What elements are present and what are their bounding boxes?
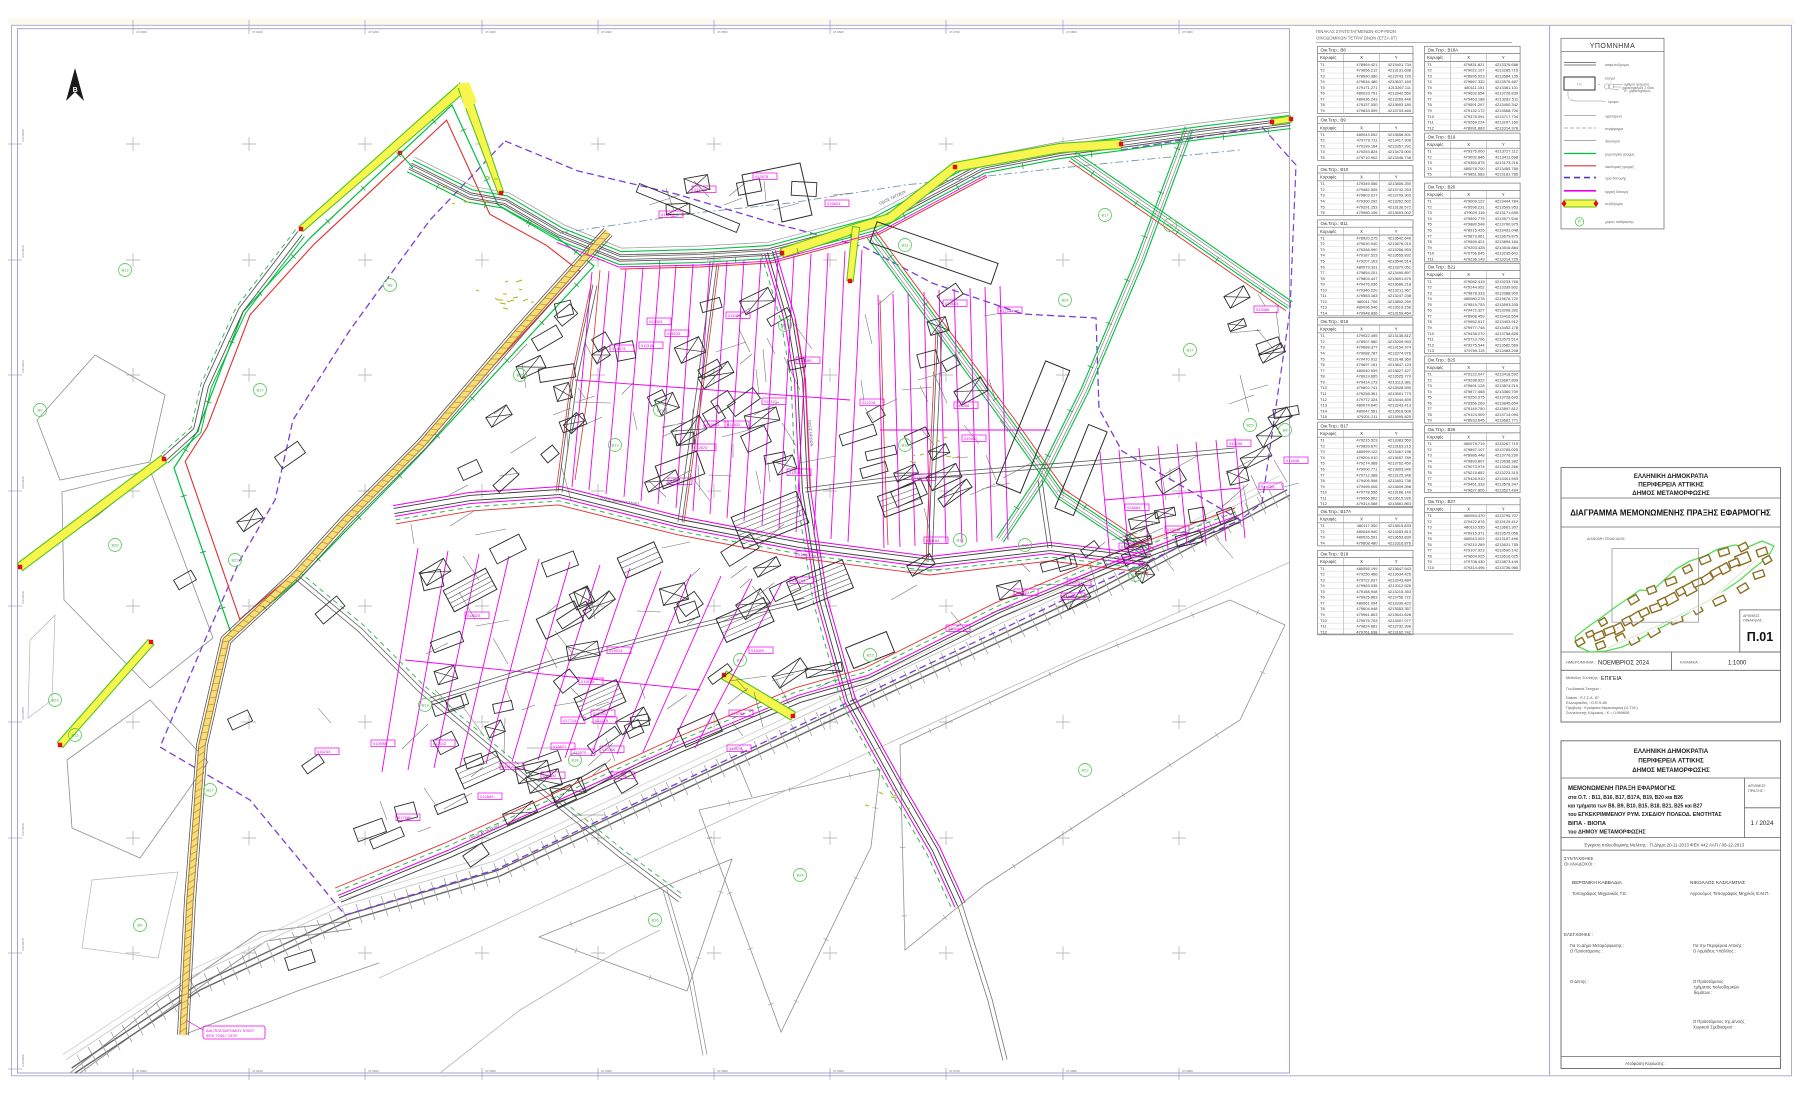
svg-text:479428.910: 479428.910 bbox=[1463, 476, 1485, 481]
svg-text:Οικ.Τετρ.: Β27: Οικ.Τετρ.: Β27 bbox=[1428, 499, 1456, 504]
svg-text:4213894.184: 4213894.184 bbox=[1495, 239, 1519, 244]
svg-text:Τ3: Τ3 bbox=[1320, 143, 1325, 148]
svg-text:479963.035: 479963.035 bbox=[1356, 583, 1378, 588]
svg-text:479268.990: 479268.990 bbox=[1356, 247, 1378, 252]
svg-text:Π1: Π1 bbox=[1577, 82, 1583, 87]
svg-text:015644: 015644 bbox=[945, 301, 959, 306]
svg-text:Τ7: Τ7 bbox=[1320, 472, 1325, 477]
svg-text:47.9000: 47.9000 bbox=[136, 1069, 147, 1073]
svg-text:479877.468: 479877.468 bbox=[1463, 389, 1485, 394]
svg-text:Τ11: Τ11 bbox=[1427, 120, 1434, 125]
svg-text:Τ5: Τ5 bbox=[1320, 259, 1325, 264]
svg-text:4213314.378: 4213314.378 bbox=[1495, 125, 1519, 130]
svg-text:Τ4: Τ4 bbox=[1427, 389, 1432, 394]
svg-text:479149.750: 479149.750 bbox=[1463, 406, 1485, 411]
svg-text:4213758.828: 4213758.828 bbox=[1495, 331, 1519, 336]
svg-text:480043.052: 480043.052 bbox=[1356, 132, 1378, 137]
svg-text:479204.010: 479204.010 bbox=[1356, 455, 1378, 460]
svg-text:4213575.514: 4213575.514 bbox=[1495, 337, 1519, 342]
svg-text:Τ7: Τ7 bbox=[1427, 314, 1432, 319]
svg-text:4213187.496: 4213187.496 bbox=[1495, 536, 1519, 541]
svg-text:4213113.381: 4213113.381 bbox=[1388, 379, 1412, 384]
svg-text:4213452.178: 4213452.178 bbox=[1495, 325, 1519, 330]
svg-text:Κορυφές: Κορυφές bbox=[1320, 327, 1336, 332]
svg-text:479634.480: 479634.480 bbox=[1356, 79, 1378, 84]
svg-text:4.213600: 4.213600 bbox=[21, 129, 25, 142]
svg-text:4213657.789: 4213657.789 bbox=[1388, 455, 1412, 460]
svg-text:019386: 019386 bbox=[798, 358, 812, 363]
svg-text:479583.183: 479583.183 bbox=[1356, 293, 1378, 298]
svg-text:4213892.259: 4213892.259 bbox=[1388, 299, 1412, 304]
svg-text:479591.297: 479591.297 bbox=[1463, 102, 1485, 107]
svg-text:479158.948: 479158.948 bbox=[1356, 589, 1378, 594]
svg-text:Τ8: Τ8 bbox=[1427, 553, 1432, 558]
svg-text:479713.796: 479713.796 bbox=[1463, 337, 1485, 342]
svg-text:480117.300: 480117.300 bbox=[1357, 523, 1379, 528]
svg-text:ΥΠΟΜΝΗΜΑ: ΥΠΟΜΝΗΜΑ bbox=[1590, 43, 1636, 50]
svg-text:του ΕΓΚΕΚΡΙΜΜΕΝΟΥ ΡΥΜ. ΣΧΕΔΙΟΥ: του ΕΓΚΕΚΡΙΜΜΕΝΟΥ ΡΥΜ. ΣΧΕΔΙΟΥ ΠΟΛΕΟΔ. Ε… bbox=[1568, 812, 1722, 818]
svg-text:Τ10: Τ10 bbox=[1320, 287, 1328, 292]
svg-text:4213703.465: 4213703.465 bbox=[1388, 108, 1412, 113]
svg-text:4213709.303: 4213709.303 bbox=[1388, 193, 1412, 198]
svg-text:480043.002: 480043.002 bbox=[1463, 536, 1485, 541]
svg-text:47.9000: 47.9000 bbox=[136, 30, 147, 34]
svg-text:479851.683: 479851.683 bbox=[1463, 172, 1485, 177]
svg-text:4213653.830: 4213653.830 bbox=[1388, 535, 1412, 540]
svg-text:4213765.025: 4213765.025 bbox=[1495, 447, 1519, 452]
svg-text:Τ11: Τ11 bbox=[1320, 391, 1327, 396]
svg-text:479275.544: 479275.544 bbox=[1463, 342, 1485, 347]
svg-text:Τ11: Τ11 bbox=[1427, 337, 1434, 342]
svg-text:479350.875: 479350.875 bbox=[1463, 160, 1485, 165]
svg-text:Τοπογράφος Μηχανικός Τ.Ε.: Τοπογράφος Μηχανικός Τ.Ε. bbox=[1572, 891, 1627, 896]
svg-text:480099.122: 480099.122 bbox=[1356, 449, 1378, 454]
svg-text:4213679.875: 4213679.875 bbox=[1495, 233, 1519, 238]
svg-text:Τ2: Τ2 bbox=[1427, 285, 1432, 290]
svg-text:4213125.348: 4213125.348 bbox=[1388, 472, 1412, 477]
svg-text:4213208.392: 4213208.392 bbox=[1495, 308, 1519, 313]
svg-text:Τ4: Τ4 bbox=[1427, 216, 1432, 221]
svg-text:Τ5: Τ5 bbox=[1320, 85, 1325, 90]
svg-text:Υ: Υ bbox=[1502, 142, 1505, 147]
svg-text:B13: B13 bbox=[121, 268, 129, 273]
svg-text:4213516.884: 4213516.884 bbox=[1495, 245, 1519, 250]
svg-text:B22: B22 bbox=[231, 558, 239, 563]
svg-text:4213575.056: 4213575.056 bbox=[1495, 530, 1519, 535]
svg-text:479274.968: 479274.968 bbox=[1356, 461, 1378, 466]
svg-text:ΕΛΕΓΧΘΗΚΕ :: ΕΛΕΓΧΘΗΚΕ : bbox=[1564, 932, 1593, 937]
svg-text:4213138.812: 4213138.812 bbox=[1388, 333, 1412, 338]
svg-text:B8: B8 bbox=[388, 283, 394, 288]
svg-text:ΠΕΡΙΦΕΡΕΙΑ ΑΤΤΙΚΗΣ: ΠΕΡΙΦΕΡΕΙΑ ΑΤΤΙΚΗΣ bbox=[1638, 482, 1704, 489]
svg-text:018972: 018972 bbox=[798, 552, 812, 557]
svg-text:4213874.210: 4213874.210 bbox=[1495, 383, 1519, 388]
svg-text:Τ9: Τ9 bbox=[1320, 282, 1325, 287]
svg-text:016821: 016821 bbox=[553, 744, 567, 749]
svg-text:4213637.160: 4213637.160 bbox=[1388, 79, 1412, 84]
svg-text:Τ6: Τ6 bbox=[1427, 470, 1432, 475]
svg-text:479604.025: 479604.025 bbox=[1463, 553, 1485, 558]
svg-text:479956.662: 479956.662 bbox=[1356, 495, 1378, 500]
svg-text:Τ6: Τ6 bbox=[1320, 362, 1325, 367]
svg-text:4213339.422: 4213339.422 bbox=[1388, 601, 1412, 606]
svg-text:4213577.540: 4213577.540 bbox=[1495, 216, 1519, 221]
svg-text:479201.211: 479201.211 bbox=[1357, 414, 1379, 419]
svg-text:Αγρονόμος Τοπογράφος Μηχ/κός Ε: Αγρονόμος Τοπογράφος Μηχ/κός Ε.Μ.Π. bbox=[1690, 891, 1770, 896]
svg-text:4213631.755: 4213631.755 bbox=[1495, 542, 1519, 547]
svg-text:4213235.601: 4213235.601 bbox=[1495, 251, 1519, 256]
svg-text:4213815.833: 4213815.833 bbox=[1388, 523, 1412, 528]
svg-text:4213693.002: 4213693.002 bbox=[1388, 210, 1412, 215]
svg-text:4213676.010: 4213676.010 bbox=[1388, 241, 1412, 246]
svg-text:478995.023: 478995.023 bbox=[1463, 73, 1485, 78]
svg-text:Τ1: Τ1 bbox=[1320, 523, 1325, 528]
svg-text:Τ3: Τ3 bbox=[1320, 345, 1325, 350]
svg-text:Κορυφές: Κορυφές bbox=[1320, 431, 1336, 436]
svg-text:4.213670: 4.213670 bbox=[21, 938, 25, 951]
svg-text:Τ5: Τ5 bbox=[1427, 85, 1432, 90]
svg-text:478933.645: 478933.645 bbox=[1463, 418, 1485, 423]
svg-text:4213467.198: 4213467.198 bbox=[1388, 449, 1412, 454]
svg-text:4213209.993: 4213209.993 bbox=[1388, 339, 1412, 344]
svg-text:Τ1: Τ1 bbox=[1320, 438, 1325, 443]
svg-text:47.9900: 47.9900 bbox=[1182, 1069, 1193, 1073]
svg-text:4213267.111: 4213267.111 bbox=[1388, 85, 1412, 90]
svg-text:4213211.967: 4213211.967 bbox=[1388, 287, 1412, 292]
svg-text:Τ4: Τ4 bbox=[1320, 79, 1325, 84]
svg-text:Υ: Υ bbox=[1502, 435, 1505, 440]
svg-text:Τ1: Τ1 bbox=[1320, 62, 1325, 67]
svg-text:Τ6: Τ6 bbox=[1320, 595, 1325, 600]
svg-text:479137.530: 479137.530 bbox=[1356, 102, 1378, 107]
svg-text:Χ: Χ bbox=[1467, 365, 1470, 370]
svg-text:Τ6: Τ6 bbox=[1320, 210, 1325, 215]
svg-text:Τ4: Τ4 bbox=[1320, 541, 1325, 546]
svg-text:4213881.863: 4213881.863 bbox=[1388, 501, 1412, 506]
svg-text:018409: 018409 bbox=[751, 648, 765, 653]
svg-text:4213360.709: 4213360.709 bbox=[1495, 389, 1519, 394]
svg-text:479897.107: 479897.107 bbox=[1463, 447, 1485, 452]
svg-text:B18: B18 bbox=[956, 538, 964, 543]
svg-text:Τ6: Τ6 bbox=[1427, 91, 1432, 96]
svg-text:ΠΙΝΑΚΑΣ ΣΥΝΤΕΤΑΓΜΕΝΩΝ ΚΟΡΥΦΩΝ: ΠΙΝΑΚΑΣ ΣΥΝΤΕΤΑΓΜΕΝΩΝ ΚΟΡΥΦΩΝ bbox=[1316, 29, 1396, 34]
svg-text:Τ5: Τ5 bbox=[1427, 222, 1432, 227]
svg-text:013578: 013578 bbox=[729, 746, 743, 751]
svg-text:011295: 011295 bbox=[694, 187, 708, 192]
svg-text:Τ10: Τ10 bbox=[1320, 385, 1328, 390]
svg-text:ΠΙΝΑΚΙΔΑΣ :: ΠΙΝΑΚΙΔΑΣ : bbox=[1743, 619, 1764, 623]
svg-text:Ο Δ/ντης :: Ο Δ/ντης : bbox=[1570, 979, 1589, 984]
svg-text:019924: 019924 bbox=[609, 648, 623, 653]
svg-text:Υ: Υ bbox=[1395, 327, 1398, 332]
svg-text:Τ12: Τ12 bbox=[1320, 501, 1328, 506]
svg-text:Χ: Χ bbox=[1360, 175, 1363, 180]
svg-text:B13: B13 bbox=[421, 703, 429, 708]
svg-text:Υ: Υ bbox=[1395, 559, 1398, 564]
svg-text:018835: 018835 bbox=[914, 475, 928, 480]
svg-text:018120: 018120 bbox=[502, 764, 516, 769]
svg-text:479948.836: 479948.836 bbox=[1356, 311, 1378, 316]
svg-text:Τ13: Τ13 bbox=[1427, 348, 1435, 353]
svg-text:Υ: Υ bbox=[1502, 365, 1505, 370]
svg-text:4213693.180: 4213693.180 bbox=[1388, 102, 1412, 107]
svg-text:47.9600: 47.9600 bbox=[833, 1069, 844, 1073]
svg-text:Τ8: Τ8 bbox=[1320, 374, 1325, 379]
svg-text:479710.902: 479710.902 bbox=[1356, 155, 1378, 160]
svg-text:4213166.149: 4213166.149 bbox=[1388, 490, 1412, 495]
svg-text:Π.01: Π.01 bbox=[1747, 630, 1773, 644]
svg-text:4213267.719: 4213267.719 bbox=[1495, 441, 1519, 446]
svg-text:ΠΡΑΞΗΣ :: ΠΡΑΞΗΣ : bbox=[1748, 789, 1765, 793]
svg-text:Τ6: Τ6 bbox=[1320, 264, 1325, 269]
svg-text:Τ8: Τ8 bbox=[1427, 102, 1432, 107]
svg-text:479656.212: 479656.212 bbox=[1356, 68, 1378, 73]
svg-text:περίφραγμα: περίφραγμα bbox=[1605, 127, 1623, 131]
svg-text:Τ6: Τ6 bbox=[1320, 91, 1325, 96]
svg-text:4213578.347: 4213578.347 bbox=[1495, 482, 1519, 487]
svg-text:4213845.654: 4213845.654 bbox=[1495, 400, 1519, 405]
svg-text:479414.173: 479414.173 bbox=[1356, 379, 1378, 384]
svg-text:Ελλειψοειδές : G.R.S-80: Ελλειψοειδές : G.R.S-80 bbox=[1566, 701, 1607, 705]
svg-text:479029.116: 479029.116 bbox=[1464, 210, 1486, 215]
svg-text:Τ4: Τ4 bbox=[1320, 351, 1325, 356]
svg-text:Τ7: Τ7 bbox=[1320, 97, 1325, 102]
svg-text:Τ2: Τ2 bbox=[1427, 377, 1432, 382]
svg-text:Τ10: Τ10 bbox=[1427, 114, 1435, 119]
svg-text:B9: B9 bbox=[138, 923, 144, 928]
svg-text:479831.821: 479831.821 bbox=[1463, 62, 1485, 67]
svg-text:014374: 014374 bbox=[612, 346, 626, 351]
svg-text:4213131.638: 4213131.638 bbox=[1388, 68, 1412, 73]
svg-text:479082.419: 479082.419 bbox=[1463, 279, 1485, 284]
svg-text:479375.091: 479375.091 bbox=[1463, 114, 1485, 119]
svg-text:479772.324: 479772.324 bbox=[1356, 397, 1378, 402]
svg-text:Τ4: Τ4 bbox=[1427, 458, 1432, 463]
svg-text:47.9200: 47.9200 bbox=[368, 1069, 379, 1073]
svg-text:4213247.238: 4213247.238 bbox=[1388, 293, 1412, 298]
svg-text:4213616.025: 4213616.025 bbox=[1495, 553, 1519, 558]
svg-text:B18: B18 bbox=[1021, 543, 1029, 548]
svg-text:Οικ.Τετρ.: Β17: Οικ.Τετρ.: Β17 bbox=[1321, 423, 1349, 428]
svg-text:Οικ.Τετρ.: Β20: Οικ.Τετρ.: Β20 bbox=[1428, 184, 1456, 189]
svg-text:478964.421: 478964.421 bbox=[1356, 62, 1378, 67]
svg-text:4.213610: 4.213610 bbox=[21, 245, 25, 258]
svg-text:Τ15: Τ15 bbox=[1320, 414, 1328, 419]
svg-text:479804.447: 479804.447 bbox=[1356, 276, 1378, 281]
svg-text:ΟΙΚΟΔΟΜΙΚΩΝ ΤΕΤΡΑΓΩΝΩΝ (ΕΓΣΑ: ΟΙΚΟΔΟΜΙΚΩΝ ΤΕΤΡΑΓΩΝΩΝ (ΕΓΣΑ 87) bbox=[1316, 36, 1397, 41]
svg-text:4213647.543: 4213647.543 bbox=[1388, 566, 1412, 571]
svg-text:479291.153: 479291.153 bbox=[1356, 204, 1378, 209]
svg-text:016643: 016643 bbox=[706, 422, 720, 427]
svg-text:479854.201: 479854.201 bbox=[1356, 270, 1378, 275]
svg-text:4213483.208: 4213483.208 bbox=[1495, 348, 1519, 353]
svg-text:ΚΛΙΜΑΚΑ :: ΚΛΙΜΑΚΑ : bbox=[1680, 660, 1700, 665]
svg-text:Οικ.Τετρ.: Β26: Οικ.Τετρ.: Β26 bbox=[1428, 427, 1456, 432]
svg-text:B16: B16 bbox=[651, 918, 659, 923]
svg-text:011943: 011943 bbox=[1121, 544, 1135, 549]
svg-text:480054.370: 480054.370 bbox=[1463, 513, 1485, 518]
svg-text:4.213660: 4.213660 bbox=[21, 823, 25, 836]
svg-text:B27: B27 bbox=[781, 323, 789, 328]
svg-text:011936: 011936 bbox=[728, 313, 742, 318]
svg-text:Τ9: Τ9 bbox=[1320, 379, 1325, 384]
svg-text:Τ9: Τ9 bbox=[1427, 559, 1432, 564]
svg-text:479463.188: 479463.188 bbox=[1463, 97, 1485, 102]
svg-text:47.9900: 47.9900 bbox=[1182, 30, 1193, 34]
svg-text:Χ: Χ bbox=[1360, 327, 1363, 332]
svg-text:Τ1: Τ1 bbox=[1427, 149, 1432, 154]
svg-text:014055: 014055 bbox=[1261, 484, 1275, 489]
svg-text:4213687.899: 4213687.899 bbox=[1495, 377, 1519, 382]
svg-text:479258.361: 479258.361 bbox=[1356, 391, 1378, 396]
svg-text:B25: B25 bbox=[1246, 423, 1254, 428]
svg-text:47.9700: 47.9700 bbox=[949, 1069, 960, 1073]
svg-text:4213638.382: 4213638.382 bbox=[1495, 458, 1519, 463]
svg-text:Τ1: Τ1 bbox=[1320, 235, 1325, 240]
svg-text:479592.775: 479592.775 bbox=[1463, 216, 1485, 221]
svg-text:480074.640: 480074.640 bbox=[1356, 403, 1378, 408]
svg-text:479697.161: 479697.161 bbox=[1356, 362, 1378, 367]
svg-text:479803.017: 479803.017 bbox=[1356, 193, 1378, 198]
svg-text:Τ11: Τ11 bbox=[1320, 624, 1327, 629]
svg-text:479314.088: 479314.088 bbox=[1356, 501, 1378, 506]
svg-text:Χ: Χ bbox=[1360, 431, 1363, 436]
svg-text:Τ1: Τ1 bbox=[1427, 441, 1432, 446]
svg-text:480011.706: 480011.706 bbox=[1357, 299, 1379, 304]
svg-text:B23: B23 bbox=[866, 653, 874, 658]
svg-text:B12: B12 bbox=[736, 658, 744, 663]
svg-text:479132.172: 479132.172 bbox=[1463, 108, 1485, 113]
svg-text:Κορυφές: Κορυφές bbox=[1320, 175, 1336, 180]
svg-text:479688.377: 479688.377 bbox=[1356, 345, 1378, 350]
svg-text:Οικ.Τετρ.: Β9: Οικ.Τετρ.: Β9 bbox=[1321, 118, 1347, 123]
svg-text:Τ10: Τ10 bbox=[1427, 565, 1435, 570]
svg-text:4213159.464: 4213159.464 bbox=[1388, 311, 1412, 316]
svg-text:κτίσμα: κτίσμα bbox=[1605, 77, 1615, 81]
svg-text:4213582.569: 4213582.569 bbox=[1495, 342, 1519, 347]
svg-text:Τ7: Τ7 bbox=[1427, 476, 1432, 481]
svg-text:4213171.695: 4213171.695 bbox=[1495, 210, 1519, 215]
svg-text:Τ9: Τ9 bbox=[1320, 484, 1325, 489]
svg-text:479300.292: 479300.292 bbox=[1356, 199, 1378, 204]
svg-text:4213762.450: 4213762.450 bbox=[1388, 461, 1412, 466]
svg-text:479107.923: 479107.923 bbox=[1463, 548, 1485, 553]
svg-text:Τ7: Τ7 bbox=[1427, 406, 1432, 411]
svg-text:Οικ.Τετρ.: Β18Α: Οικ.Τετρ.: Β18Α bbox=[1428, 48, 1459, 53]
svg-text:47.9800: 47.9800 bbox=[1066, 30, 1077, 34]
svg-text:Τ9: Τ9 bbox=[1427, 245, 1432, 250]
svg-text:4213540.514: 4213540.514 bbox=[1388, 259, 1412, 264]
svg-text:480080.278: 480080.278 bbox=[1463, 296, 1485, 301]
svg-text:Τ5: Τ5 bbox=[1427, 464, 1432, 469]
svg-text:Κορυφές: Κορυφές bbox=[1320, 125, 1336, 130]
svg-text:019554: 019554 bbox=[593, 711, 607, 716]
svg-text:Τ12: Τ12 bbox=[1427, 342, 1435, 347]
svg-text:480096.546: 480096.546 bbox=[1356, 305, 1378, 310]
svg-text:012869: 012869 bbox=[480, 794, 494, 799]
svg-text:Τ5: Τ5 bbox=[1320, 204, 1325, 209]
svg-text:ρυμοτομική γραμμή: ρυμοτομική γραμμή bbox=[1605, 153, 1634, 157]
svg-text:Τ3: Τ3 bbox=[1427, 453, 1432, 458]
svg-text:Τ3: Τ3 bbox=[1320, 577, 1325, 582]
svg-text:480078.700: 480078.700 bbox=[1463, 166, 1485, 171]
svg-text:Τ12: Τ12 bbox=[1320, 299, 1328, 304]
svg-text:Οικ.Τετρ.: Β25: Οικ.Τετρ.: Β25 bbox=[1428, 357, 1456, 362]
svg-text:4213542.649: 4213542.649 bbox=[1388, 235, 1412, 240]
svg-text:4213418.592: 4213418.592 bbox=[1495, 372, 1519, 377]
svg-text:4.213630: 4.213630 bbox=[21, 476, 25, 489]
svg-text:Οικ.Τετρ.: Β16: Οικ.Τετρ.: Β16 bbox=[1321, 319, 1349, 324]
svg-text:479833.599: 479833.599 bbox=[1356, 108, 1378, 113]
svg-text:4213455.789: 4213455.789 bbox=[1495, 166, 1519, 171]
svg-text:4213743.720: 4213743.720 bbox=[1388, 73, 1412, 78]
svg-text:479802.741: 479802.741 bbox=[1356, 385, 1378, 390]
svg-text:Υ: Υ bbox=[1395, 229, 1398, 234]
svg-text:ΕΛΛΗΝΙΚΗ ΔΗΜΟΚΡΑΤΙΑ: ΕΛΛΗΝΙΚΗ ΔΗΜΟΚΡΑΤΙΑ bbox=[1634, 748, 1709, 755]
svg-text:του ΔΗΜΟΥ ΜΕΤΑΜΟΡΦΩΣΗΣ: του ΔΗΜΟΥ ΜΕΤΑΜΟΡΦΩΣΗΣ bbox=[1568, 830, 1646, 836]
svg-text:Τ8: Τ8 bbox=[1427, 482, 1432, 487]
svg-text:Κορυφές: Κορυφές bbox=[1427, 192, 1443, 197]
svg-text:480026.591: 480026.591 bbox=[1356, 535, 1378, 540]
svg-text:4213416.554: 4213416.554 bbox=[1495, 314, 1519, 319]
svg-text:Υ: Υ bbox=[1395, 517, 1398, 522]
svg-text:480078.719: 480078.719 bbox=[1463, 441, 1485, 446]
svg-text:Τ8: Τ8 bbox=[1427, 412, 1432, 417]
svg-text:Τ5: Τ5 bbox=[1320, 155, 1325, 160]
svg-text:012188: 012188 bbox=[641, 343, 655, 348]
svg-text:4213346.738: 4213346.738 bbox=[1388, 155, 1412, 160]
svg-text:479375.000: 479375.000 bbox=[1463, 149, 1485, 154]
svg-text:4213676.720: 4213676.720 bbox=[1495, 296, 1519, 301]
svg-text:θεμάτων :: θεμάτων : bbox=[1694, 990, 1712, 995]
svg-text:ΑΡΙΘΜΟΣ: ΑΡΙΘΜΟΣ bbox=[1743, 614, 1760, 618]
svg-text:Τ7: Τ7 bbox=[1320, 601, 1325, 606]
svg-text:4213388.900: 4213388.900 bbox=[1495, 290, 1519, 295]
svg-text:4213314.725: 4213314.725 bbox=[1495, 256, 1519, 261]
svg-text:4213897.812: 4213897.812 bbox=[1495, 406, 1519, 411]
svg-text:480047.561: 480047.561 bbox=[1356, 408, 1378, 413]
svg-text:013692: 013692 bbox=[543, 773, 557, 778]
svg-text:478986.448: 478986.448 bbox=[1463, 453, 1485, 458]
svg-text:4213519.156: 4213519.156 bbox=[1388, 305, 1412, 310]
svg-text:4213112.526: 4213112.526 bbox=[1388, 583, 1412, 588]
svg-text:B13: B13 bbox=[611, 443, 619, 448]
svg-text:Υ: Υ bbox=[1395, 431, 1398, 436]
svg-text:016266: 016266 bbox=[956, 403, 970, 408]
svg-text:4213215.353: 4213215.353 bbox=[1388, 589, 1412, 594]
svg-text:4213370.051: 4213370.051 bbox=[1388, 264, 1412, 269]
svg-text:Χ: Χ bbox=[1467, 192, 1470, 197]
svg-text:1:1000: 1:1000 bbox=[1728, 661, 1747, 667]
svg-text:4213223.315: 4213223.315 bbox=[1495, 470, 1519, 475]
svg-text:Τ4: Τ4 bbox=[1320, 149, 1325, 154]
svg-text:Τ6: Τ6 bbox=[1320, 467, 1325, 472]
svg-text:Κορυφές: Κορυφές bbox=[1320, 229, 1336, 234]
svg-text:479878.333: 479878.333 bbox=[1463, 290, 1485, 295]
svg-text:4213576.487: 4213576.487 bbox=[1495, 79, 1519, 84]
svg-text:Υ: Υ bbox=[1395, 125, 1398, 130]
svg-text:Τ2: Τ2 bbox=[1320, 529, 1325, 534]
svg-text:015253: 015253 bbox=[1063, 594, 1077, 599]
svg-text:479092.846: 479092.846 bbox=[1463, 154, 1485, 159]
svg-text:Τ2: Τ2 bbox=[1320, 443, 1325, 448]
svg-text:Τ6: Τ6 bbox=[1427, 400, 1432, 405]
svg-text:479000.771: 479000.771 bbox=[1356, 467, 1378, 472]
svg-text:47.9700: 47.9700 bbox=[949, 30, 960, 34]
svg-text:Τ2: Τ2 bbox=[1427, 68, 1432, 73]
svg-text:479088.787: 479088.787 bbox=[1356, 351, 1378, 356]
svg-text:016824: 016824 bbox=[827, 201, 841, 206]
